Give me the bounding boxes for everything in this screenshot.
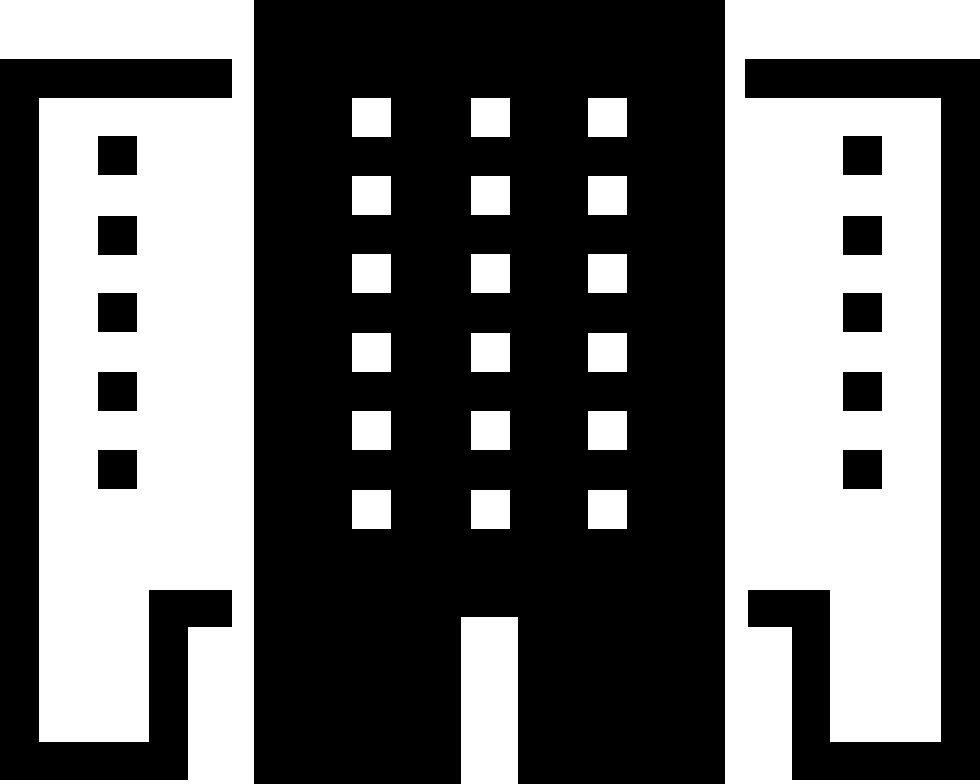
right-building [0,0,980,784]
office-buildings-icon [0,0,980,784]
right-building-window [843,450,882,489]
right-building-window [843,293,882,332]
right-building-window [843,216,882,255]
right-building-window [843,136,882,175]
right-building-window [843,372,882,411]
right-building-windows [0,0,980,784]
